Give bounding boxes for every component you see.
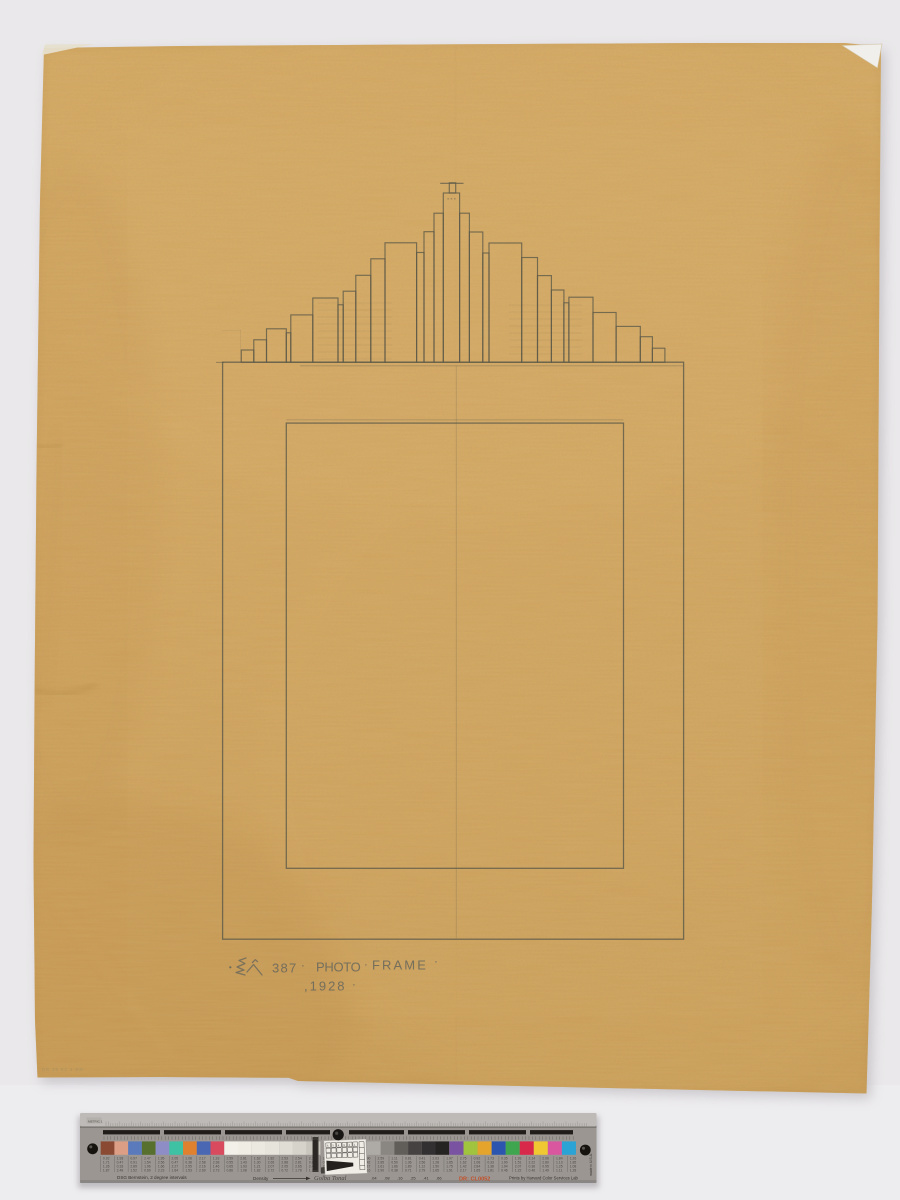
svg-text:1.28: 1.28 [570, 1168, 577, 1172]
svg-text:2.73: 2.73 [213, 1168, 220, 1172]
svg-text:0.46: 0.46 [529, 1168, 536, 1172]
svg-text:made in U.S.A.: made in U.S.A. [589, 1153, 593, 1176]
svg-text:1.81: 1.81 [487, 1168, 494, 1172]
svg-text:.04: .04 [371, 1176, 377, 1181]
svg-text:DR: CL0052: DR: CL0052 [459, 1177, 490, 1183]
svg-text:2.69: 2.69 [199, 1168, 206, 1172]
svg-text:0.69: 0.69 [144, 1168, 151, 1172]
svg-text:1.87: 1.87 [103, 1168, 110, 1172]
svg-text:.66: .66 [436, 1176, 442, 1181]
svg-text:2.79: 2.79 [419, 1168, 426, 1172]
svg-text:0.72: 0.72 [281, 1168, 288, 1172]
svg-text:.25: .25 [410, 1176, 416, 1181]
svg-text:0.71: 0.71 [405, 1168, 412, 1172]
svg-text:1.82: 1.82 [254, 1168, 261, 1172]
svg-text:0.38: 0.38 [391, 1168, 398, 1172]
svg-text:0.46: 0.46 [501, 1168, 508, 1172]
svg-text:·: · [352, 979, 357, 991]
svg-text:.08: .08 [384, 1176, 390, 1181]
svg-text:·: · [301, 960, 306, 972]
svg-text:1.08: 1.08 [240, 1168, 247, 1172]
svg-text:Prints by Harvard Color Servic: Prints by Harvard Color Services Lab [509, 1176, 579, 1181]
svg-text:1.22: 1.22 [515, 1168, 522, 1172]
svg-text:PHOTO: PHOTO [316, 960, 361, 975]
svg-text:1.65: 1.65 [432, 1168, 439, 1172]
svg-text:,1928: ,1928 [304, 979, 347, 994]
svg-text:1.91: 1.91 [446, 1168, 453, 1172]
svg-text:·: · [434, 956, 439, 968]
svg-text:2.23: 2.23 [158, 1168, 165, 1172]
svg-text:1.78: 1.78 [295, 1168, 302, 1172]
svg-text:DR 29 83 4 RM: DR 29 83 4 RM [42, 1067, 84, 1072]
svg-text:1.52: 1.52 [130, 1168, 137, 1172]
svg-text:1.11: 1.11 [556, 1168, 562, 1172]
svg-text:1.53: 1.53 [185, 1168, 192, 1172]
svg-text:1.49: 1.49 [542, 1168, 549, 1172]
svg-text:2.90: 2.90 [378, 1168, 385, 1172]
svg-text:·: · [364, 959, 369, 971]
svg-text:DSG Bernstein, 2 degree interv: DSG Bernstein, 2 degree intervals [117, 1175, 187, 1180]
svg-text:FRAME: FRAME [372, 958, 428, 973]
svg-text:METRIC 1: METRIC 1 [88, 1119, 103, 1123]
svg-text:.16: .16 [397, 1176, 403, 1181]
svg-text:Golba Tonal: Golba Tonal [314, 1175, 347, 1182]
svg-text:387: 387 [272, 961, 298, 976]
svg-text:2.72: 2.72 [268, 1168, 275, 1172]
svg-text:0.86: 0.86 [226, 1168, 233, 1172]
svg-text:2.48: 2.48 [117, 1168, 124, 1172]
svg-text:1.65: 1.65 [474, 1168, 481, 1172]
svg-text:1.84: 1.84 [172, 1168, 179, 1172]
svg-text:.41: .41 [423, 1176, 429, 1181]
svg-text:2.17: 2.17 [460, 1168, 467, 1172]
